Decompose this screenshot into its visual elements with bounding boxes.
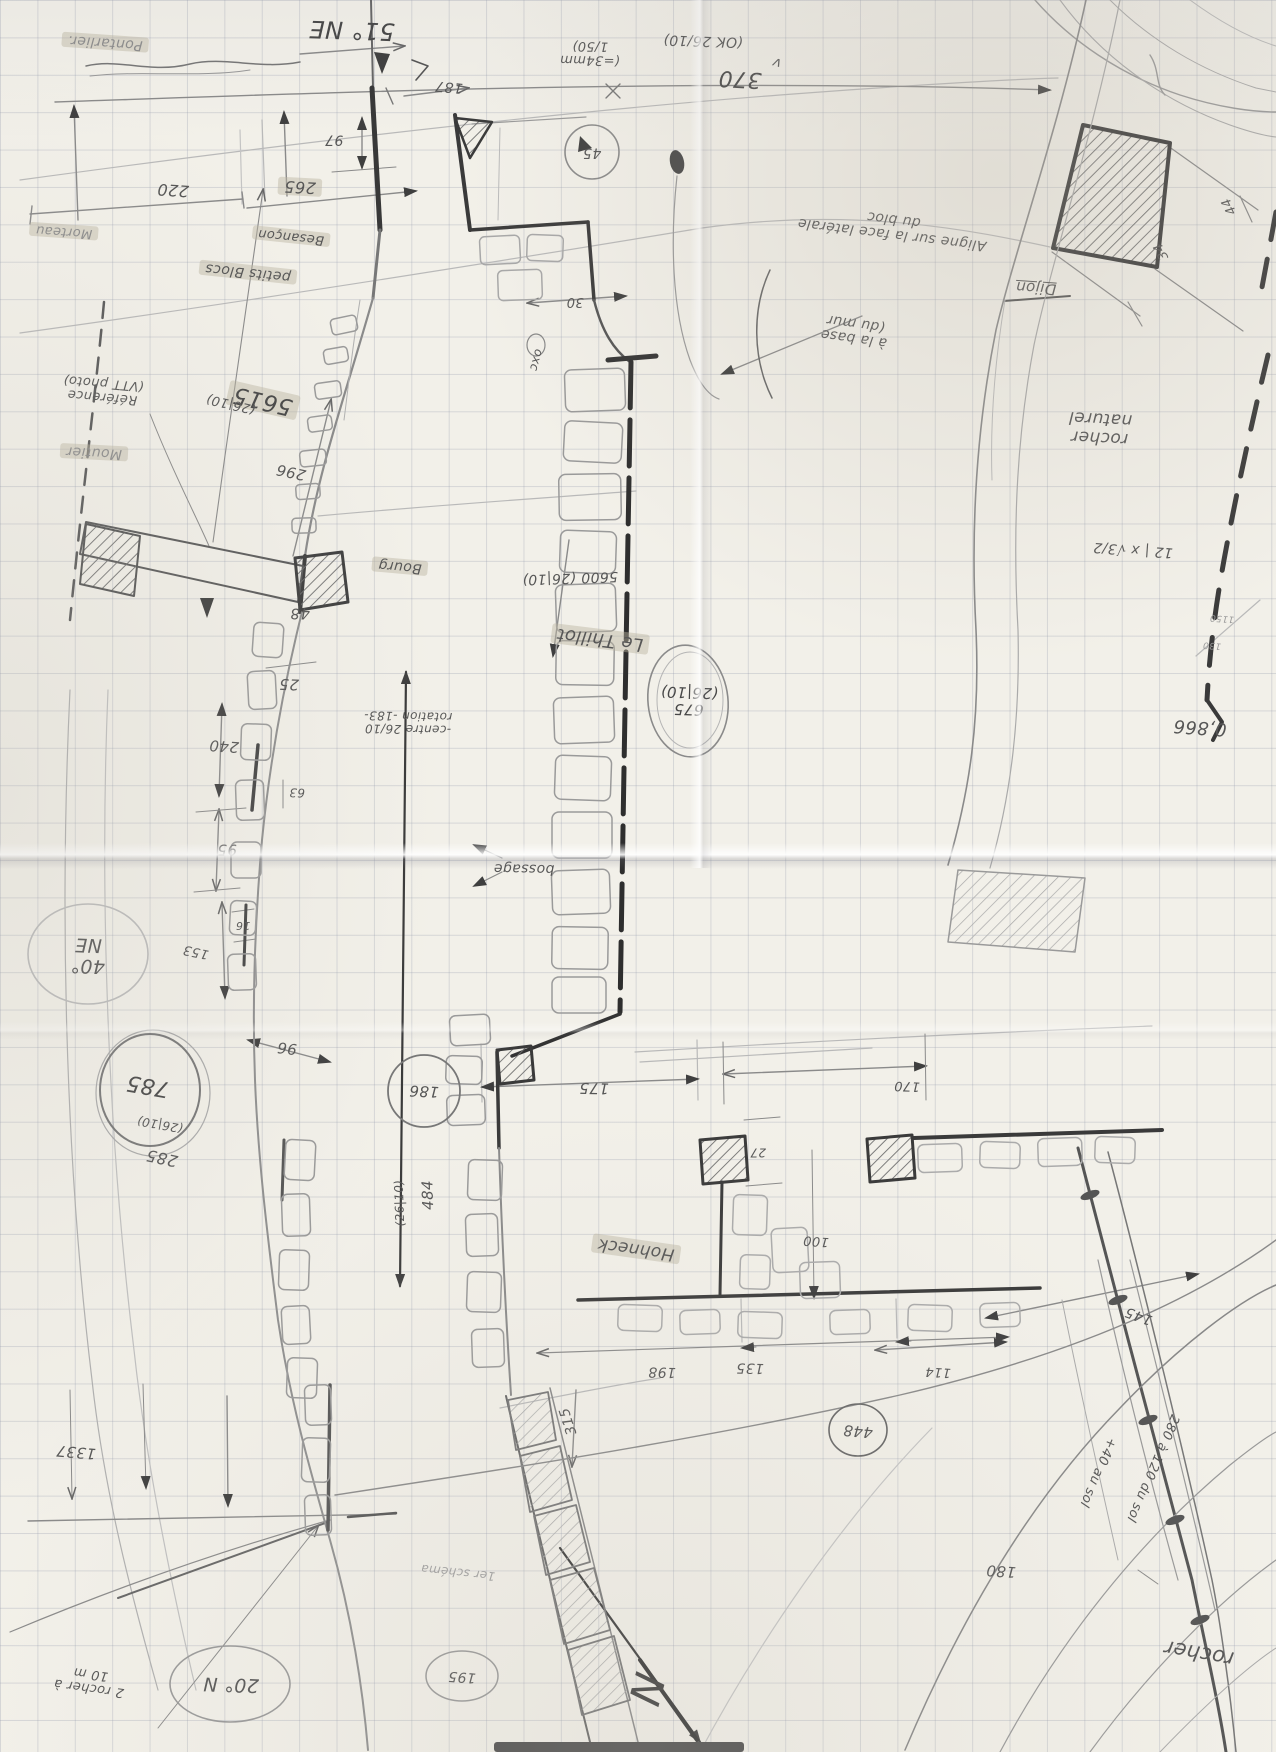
- label-check-mark: v: [771, 53, 783, 70]
- label-moutier: Moutier: [60, 443, 129, 462]
- label-hohneck: Hohneck: [591, 1234, 682, 1265]
- label-rocher-naturel: rocher naturel: [1067, 408, 1132, 449]
- label-dim-44: 44: [1220, 195, 1241, 217]
- label-dim-1337: 1337: [55, 1442, 96, 1462]
- graph-paper-sheet: Pontarlier.51° NE18797265220Morteau(=34m…: [0, 0, 1276, 1752]
- label-dim-448: 448: [842, 1421, 873, 1440]
- label-dim-675: 675 (26|10): [660, 684, 719, 719]
- label-ok-26-10: (OK 26/10): [663, 31, 743, 49]
- label-dim-187: 187: [434, 77, 463, 95]
- label-dim-180: 180: [986, 1562, 1017, 1581]
- label-scale-note: (=34mm 1/50): [560, 37, 621, 67]
- label-bourg: Bourg: [372, 556, 429, 576]
- label-dim-785: 785: [125, 1069, 172, 1100]
- label-north-letter: N: [620, 1668, 673, 1711]
- label-dim-785-date: (26|10): [136, 1113, 184, 1134]
- label-dim-95: 95: [217, 841, 237, 858]
- label-bearing-20-n: 20° N: [203, 1673, 260, 1696]
- label-dim-315: 315: [557, 1405, 580, 1436]
- label-dim-114: 114: [925, 1363, 952, 1379]
- label-dim-170: 170: [894, 1077, 920, 1092]
- label-dim-5600: 5600 (26|10): [522, 568, 619, 587]
- label-dim-153: 153: [182, 941, 210, 960]
- label-centre-note: -centre 26/10 rotation -183-: [364, 708, 453, 736]
- label-petits-blocs: petits Blocs: [198, 259, 297, 285]
- label-dijon: Dijon: [1015, 278, 1057, 297]
- label-dim-370: 370: [718, 65, 762, 91]
- label-dim-135: 135: [736, 1359, 764, 1375]
- label-schema-note: 1er schéma: [420, 1562, 496, 1583]
- label-dim-198: 198: [648, 1363, 676, 1379]
- label-reference-note: Référence (VTT photo): [61, 371, 144, 407]
- annotation-layer: Pontarlier.51° NE18797265220Morteau(=34m…: [0, 0, 1276, 1752]
- label-morteau: Morteau: [29, 221, 98, 240]
- label-dim-265: 265: [278, 177, 323, 197]
- label-dim-296: 296: [275, 461, 308, 483]
- label-dim-175: 175: [579, 1079, 609, 1096]
- label-value-130: 130: [1202, 638, 1221, 649]
- label-note-2-rocher: 2 rocher à 10 m: [53, 1661, 127, 1699]
- label-dim-45: 45: [583, 144, 602, 159]
- label-math-note: 12 | x √3/2: [1093, 539, 1174, 560]
- label-rocher: rocher: [1162, 1636, 1235, 1671]
- label-a-la-base: à la base (du mur: [820, 310, 891, 350]
- label-dim-220: 220: [157, 180, 190, 200]
- label-dim-195: 195: [448, 1667, 477, 1684]
- label-bearing-51-ne: 51° NE: [309, 15, 396, 44]
- scan-edge-artifact: [494, 1742, 744, 1752]
- label-dim-63: 63: [289, 785, 306, 799]
- label-dim-30: 30: [566, 294, 583, 308]
- label-oxc: oxc: [527, 348, 545, 373]
- label-dim-34: 34: [1152, 240, 1173, 262]
- label-dim-484-date: (26|10): [393, 1179, 408, 1226]
- label-pontarlier: Pontarlier.: [61, 31, 149, 52]
- label-aligne-note: Aligne sur la face latérale du bloc: [797, 199, 989, 253]
- label-value-0866: 0,866: [1173, 715, 1228, 738]
- label-dim-484: 484: [419, 1180, 437, 1210]
- label-dim-25: 25: [279, 675, 299, 692]
- label-value-1150: 1150: [1209, 611, 1234, 623]
- label-dim-48: 48: [290, 605, 310, 622]
- label-dim-96: 96: [276, 1039, 298, 1057]
- label-dim-27: 27: [750, 1145, 766, 1158]
- label-le-thillot: Le Thillot: [550, 623, 650, 655]
- label-note-40-sol: +40 au sol: [1076, 1435, 1118, 1509]
- label-dim-100: 100: [803, 1232, 830, 1248]
- label-dim-186: 186: [409, 1082, 440, 1100]
- label-dim-145: 145: [1123, 1303, 1155, 1327]
- label-bossage: bossage: [493, 860, 554, 876]
- label-bearing-40-ne: 40° NE: [70, 934, 106, 977]
- label-dim-240: 240: [209, 737, 240, 756]
- label-dim-285: 285: [145, 1146, 180, 1170]
- label-besancon: Besançon: [251, 225, 331, 247]
- label-note-280: 280 à 120 du sol: [1123, 1412, 1181, 1524]
- label-dim-16: 16: [236, 919, 251, 931]
- label-dim-97: 97: [325, 131, 344, 146]
